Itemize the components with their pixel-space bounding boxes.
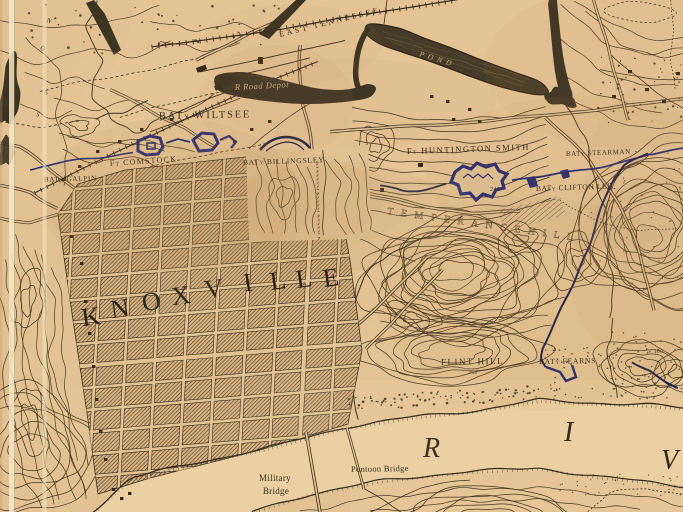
svg-text:V: V xyxy=(661,445,681,476)
svg-text:Military: Military xyxy=(259,473,291,483)
svg-text:Bridge: Bridge xyxy=(263,486,289,496)
svg-text:I: I xyxy=(563,417,575,448)
